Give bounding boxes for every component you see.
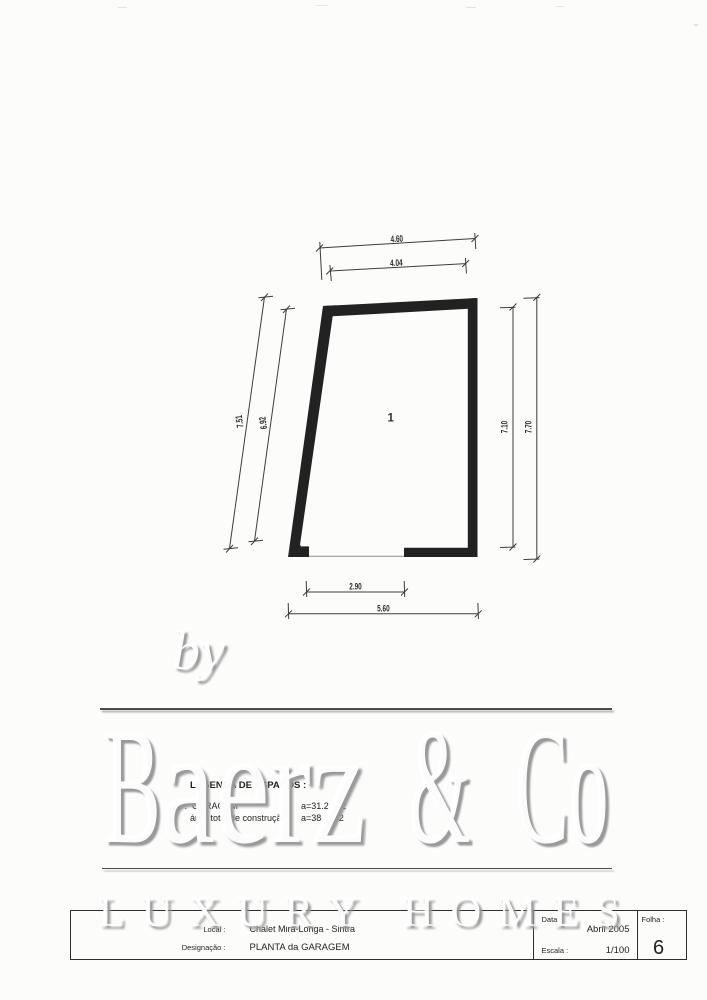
svg-text:7.51: 7.51 bbox=[234, 414, 247, 428]
svg-text:5.60: 5.60 bbox=[377, 603, 390, 614]
svg-text:2.90: 2.90 bbox=[349, 582, 362, 593]
svg-text:7.70: 7.70 bbox=[523, 421, 534, 434]
svg-text:6.92: 6.92 bbox=[258, 416, 271, 430]
svg-text:4.04: 4.04 bbox=[390, 258, 404, 270]
svg-text:4.60: 4.60 bbox=[390, 234, 403, 246]
svg-text:7.10: 7.10 bbox=[500, 421, 511, 434]
svg-text:1: 1 bbox=[387, 412, 394, 424]
